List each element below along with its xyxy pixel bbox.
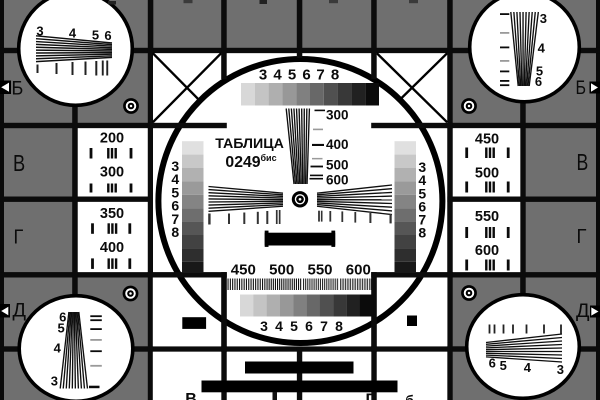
svg-text:500: 500: [269, 262, 294, 279]
svg-text:6: 6: [535, 74, 542, 89]
svg-text:6: 6: [104, 28, 111, 43]
svg-text:Г: Г: [365, 392, 374, 400]
svg-text:350: 350: [100, 206, 124, 222]
svg-text:450: 450: [231, 262, 256, 279]
svg-text:400: 400: [326, 137, 349, 152]
svg-text:8: 8: [418, 224, 426, 240]
svg-text:бис: бис: [261, 153, 277, 163]
svg-text:4: 4: [273, 67, 282, 84]
svg-text:4: 4: [69, 25, 77, 40]
svg-text:6: 6: [489, 356, 496, 371]
svg-text:8: 8: [335, 318, 343, 334]
svg-text:0249: 0249: [225, 154, 260, 171]
svg-text:500: 500: [475, 165, 499, 181]
svg-text:300: 300: [100, 164, 124, 180]
svg-text:600: 600: [346, 262, 371, 279]
svg-text:5: 5: [288, 67, 296, 84]
svg-text:ТАБЛИЦА: ТАБЛИЦА: [215, 136, 284, 152]
svg-text:6: 6: [305, 318, 313, 334]
svg-text:7: 7: [316, 67, 324, 84]
svg-text:200: 200: [100, 130, 124, 146]
svg-text:Д: Д: [13, 300, 27, 322]
svg-text:5: 5: [92, 27, 99, 42]
svg-text:3: 3: [36, 23, 43, 38]
svg-text:4: 4: [524, 360, 532, 375]
svg-text:450: 450: [475, 132, 499, 148]
svg-text:400: 400: [100, 240, 124, 256]
svg-text:7: 7: [320, 318, 328, 334]
svg-text:600: 600: [326, 173, 349, 188]
svg-text:4: 4: [275, 318, 283, 334]
svg-text:3: 3: [259, 67, 267, 84]
svg-text:5: 5: [290, 318, 298, 334]
svg-text:8: 8: [331, 67, 339, 84]
svg-text:б: б: [405, 393, 413, 400]
svg-text:300: 300: [326, 108, 349, 123]
svg-text:5: 5: [57, 321, 64, 336]
svg-text:550: 550: [475, 209, 499, 225]
svg-text:В: В: [185, 391, 197, 400]
svg-text:3: 3: [260, 318, 268, 334]
svg-text:5: 5: [500, 358, 507, 373]
svg-text:В: В: [13, 150, 25, 176]
svg-text:3: 3: [51, 374, 58, 389]
svg-text:550: 550: [307, 262, 332, 279]
svg-text:3: 3: [540, 11, 547, 26]
svg-text:8: 8: [171, 224, 179, 240]
svg-text:Б: Б: [12, 77, 24, 99]
svg-text:Г: Г: [14, 226, 24, 249]
svg-text:4: 4: [54, 341, 62, 356]
svg-text:Д: Д: [576, 300, 590, 322]
svg-text:Г: Г: [577, 225, 587, 248]
svg-text:6: 6: [302, 67, 310, 84]
svg-text:3: 3: [557, 362, 564, 377]
svg-text:В: В: [577, 149, 589, 175]
svg-text:600: 600: [475, 243, 499, 259]
svg-text:Б: Б: [576, 77, 587, 99]
svg-text:500: 500: [326, 158, 349, 173]
svg-text:4: 4: [538, 40, 546, 55]
